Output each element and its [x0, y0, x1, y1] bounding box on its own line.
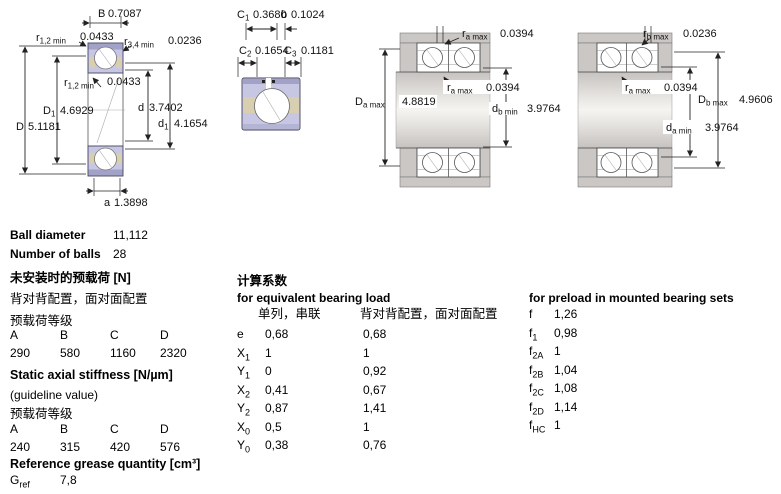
col-single-tandem-header: 单列，串联: [258, 303, 360, 322]
factor-row-f: f 1,26: [529, 307, 577, 321]
factor-row-Y0: Y0 0,380,76: [237, 438, 386, 452]
grease-row: Gref 7,8: [10, 473, 77, 487]
dim-D1-label: D1: [43, 105, 56, 119]
factor-row-Y2: Y2 0,871,41: [237, 401, 386, 415]
factor-row-f2B: f2B 1,04: [529, 363, 577, 377]
factor-row-fHC: fHC 1: [529, 418, 561, 432]
dim-C2-label: C2: [239, 45, 252, 59]
bearing-land-dims-drawing: C1 0.3680 b 0.1024 C2 0.1654 C3 0.1181: [230, 5, 345, 145]
dim-b-label: b: [281, 9, 287, 21]
preload-class-label: 预载荷等级: [10, 310, 73, 329]
stiffness-class-headers: AB CD: [10, 422, 210, 436]
dim-d-label: d: [138, 102, 144, 114]
preload-values: 290580 11602320: [10, 346, 210, 360]
bearing-pair-top: [597, 43, 658, 72]
stiffness-subtitle: (guideline value): [10, 388, 98, 402]
bearing-pair-bottom: [597, 148, 658, 177]
ball-diameter-value: 11,112: [113, 228, 148, 242]
number-of-balls-value: 28: [113, 247, 126, 261]
mounting-dims-drawing-1: ra max 0.0394 ra max 0.0394 Da max 4.881…: [350, 14, 565, 194]
preload-factors-title: for preload in mounted bearing sets: [529, 291, 734, 305]
dim-Db-max-label: Db max: [698, 94, 728, 108]
bearing-section: [242, 78, 300, 130]
dim-r34-label: r3,4 min: [124, 36, 154, 50]
dim-r12-inner-label: r1,2 min: [64, 77, 94, 91]
dim-b-value: 0.1024: [291, 9, 325, 21]
preload-class-headers: AB CD: [10, 328, 210, 342]
factor-row-f2C: f2C 1,08: [529, 381, 577, 395]
dim-D-label: D: [16, 121, 24, 133]
stiffness-values: 240315 420576: [10, 440, 210, 454]
dim-a-label: a: [104, 197, 111, 209]
stiffness-class-label: 预载荷等级: [10, 403, 73, 422]
factor-row-f2D: f2D 1,14: [529, 400, 577, 414]
bearing-pair-bottom: [417, 148, 480, 177]
grease-row-label: Gref: [10, 473, 60, 487]
dim-C1-label: C1: [237, 9, 250, 23]
grease-title: Reference grease quantity [cm³]: [10, 457, 200, 471]
equiv-load-headers: 单列，串联 背对背配置，面对面配置: [258, 303, 498, 322]
dim-a-value: 1.3898: [114, 197, 148, 209]
grease-row-value: 7,8: [60, 473, 77, 487]
dim-r34-value: 0.0236: [168, 35, 202, 47]
dim-rb-max-top-label: rb max: [643, 28, 668, 42]
dim-ra-max-top-label: ra max: [462, 28, 487, 42]
dim-rb-max-top-value: 0.0236: [683, 28, 717, 40]
dim-r12-inner-value: 0.0433: [107, 76, 141, 88]
factor-row-X1: X1 11: [237, 346, 370, 360]
factor-row-e: e 0,680,68: [237, 327, 386, 341]
dim-D-value: 5.1181: [28, 121, 61, 133]
dim-db-min-value: 3.9764: [527, 103, 561, 115]
dim-da-min-value: 3.9764: [705, 122, 739, 134]
factor-row-X0: X0 0,51: [237, 420, 370, 434]
dim-Da-max-value: 4.8819: [402, 96, 436, 108]
dim-d-value: 3.7402: [149, 102, 183, 114]
dim-Db-max-value: 4.9606: [739, 94, 773, 106]
dim-Da-max-label: Da max: [355, 96, 385, 110]
single-bearing-section-drawing: B 0.7087 r1,2 min 0.0433 r3,4 min 0.0236…: [5, 5, 220, 210]
col-back-to-back-header: 背对背配置，面对面配置: [360, 303, 498, 322]
dim-d1-label: d1: [158, 118, 169, 132]
dim-ra-max-inner-value: 0.0394: [664, 82, 698, 94]
factor-row-f1: f1 0,98: [529, 326, 577, 340]
dim-r12-top-value: 0.0433: [80, 31, 114, 43]
mounting-dims-drawing-2: rb max 0.0236 ra max 0.0394 Db max 4.960…: [575, 14, 781, 194]
dim-B-label: B: [98, 8, 105, 20]
dimension-labels: B 0.7087 r1,2 min 0.0433 r3,4 min 0.0236…: [16, 8, 208, 209]
calc-factors-title: 计算系数: [237, 270, 287, 289]
factor-row-f2A: f2A 1: [529, 344, 561, 358]
factor-row-X2: X2 0,410,67: [237, 383, 386, 397]
dimension-labels: C1 0.3680 b 0.1024 C2 0.1654 C3 0.1181: [237, 9, 334, 59]
dim-ra-max-inner-value: 0.0394: [486, 82, 520, 94]
dim-C3-label: C3: [284, 45, 297, 59]
bearing-datasheet-page: B 0.7087 r1,2 min 0.0433 r3,4 min 0.0236…: [0, 0, 781, 494]
dim-r12-top-label: r1,2 min: [36, 32, 66, 46]
dim-ra-max-top-value: 0.0394: [500, 28, 534, 40]
number-of-balls-row: Number of balls 28: [10, 247, 126, 261]
ball-diameter-label: Ball diameter: [10, 228, 113, 242]
stiffness-title: Static axial stiffness [N/µm]: [10, 368, 173, 382]
ball-diameter-row: Ball diameter 11,112: [10, 228, 148, 242]
dim-D1-value: 4.6929: [60, 105, 94, 117]
preload-arrangement-subtitle: 背对背配置，面对面配置: [10, 288, 148, 307]
number-of-balls-label: Number of balls: [10, 247, 113, 261]
factor-row-Y1: Y1 00,92: [237, 364, 386, 378]
dim-B-value: 0.7087: [108, 8, 142, 20]
preload-unmounted-title: 未安装时的预载荷 [N]: [10, 267, 131, 286]
bearing-pair-top: [417, 43, 480, 72]
dim-C3-value: 0.1181: [301, 45, 334, 57]
dim-d1-value: 4.1654: [174, 118, 208, 130]
